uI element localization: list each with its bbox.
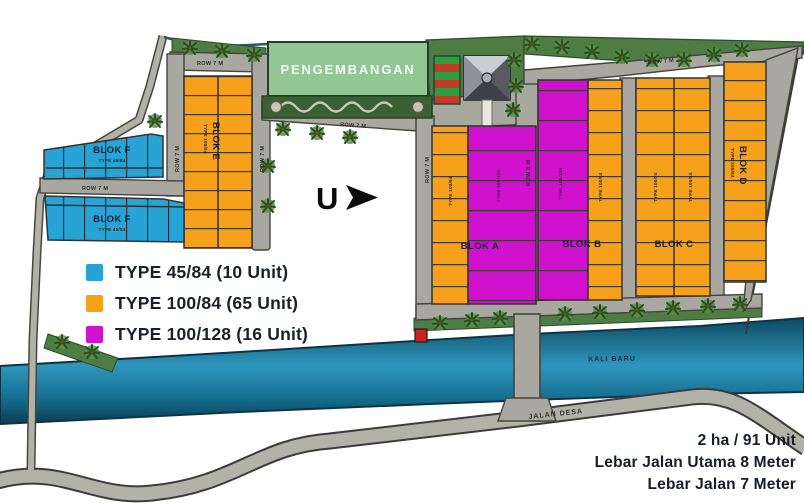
site-plan: PENGEMBANGAN <box>0 0 804 504</box>
development-label: PENGEMBANGAN <box>281 62 416 77</box>
summary-main-road: Lebar Jalan Utama 8 Meter <box>595 452 796 474</box>
legend: TYPE 45/84 (10 Unit) TYPE 100/84 (65 Uni… <box>86 262 308 355</box>
north-indicator: U <box>316 181 378 216</box>
development-area: PENGEMBANGAN <box>268 42 428 96</box>
svg-text:ROW 7 M: ROW 7 M <box>175 146 181 172</box>
legend-label: TYPE 100/84 (65 Unit) <box>115 293 298 314</box>
legend-label: TYPE 100/128 (16 Unit) <box>115 324 308 345</box>
legend-label: TYPE 45/84 (10 Unit) <box>115 262 288 283</box>
svg-text:TYPE 100/84: TYPE 100/84 <box>653 172 658 202</box>
svg-text:TYPE 100/84: TYPE 100/84 <box>730 148 735 178</box>
svg-text:BLOK B: BLOK B <box>563 239 602 250</box>
summary-area-units: 2 ha / 91 Unit <box>595 430 796 452</box>
blok-a-right <box>468 126 536 304</box>
blok-c <box>636 78 710 296</box>
svg-text:BLOK F: BLOK F <box>93 145 131 156</box>
legend-swatch-orange <box>86 295 103 312</box>
svg-text:ROW 7 M: ROW 7 M <box>197 61 223 67</box>
road-row7-west-of-blok-e <box>167 54 184 196</box>
court <box>434 56 460 104</box>
legend-item-type-100-84: TYPE 100/84 (65 Unit) <box>86 293 308 314</box>
svg-text:TYPE 45/84: TYPE 45/84 <box>99 227 126 232</box>
north-arrow-icon <box>346 185 378 210</box>
svg-text:TYPE 100/128: TYPE 100/128 <box>496 169 501 202</box>
blok-b-right <box>588 80 622 300</box>
gazebo-path <box>482 100 492 126</box>
summary-info: 2 ha / 91 Unit Lebar Jalan Utama 8 Meter… <box>595 430 796 496</box>
svg-text:TYPE 100/128: TYPE 100/128 <box>558 167 563 200</box>
svg-text:ROW 7 M: ROW 7 M <box>260 146 266 172</box>
blok-b-left <box>538 80 588 300</box>
gate-marker <box>415 329 427 342</box>
site-plan-drawing: PENGEMBANGAN <box>0 0 804 504</box>
svg-text:BLOK E: BLOK E <box>210 122 221 160</box>
svg-text:TYPE 100/84: TYPE 100/84 <box>598 172 603 202</box>
svg-text:TYPE 100/84: TYPE 100/84 <box>688 172 693 202</box>
svg-text:ROW 7 M: ROW 7 M <box>82 186 108 192</box>
river-label: KALI BARU <box>588 356 636 364</box>
summary-secondary-road: Lebar Jalan 7 Meter <box>595 474 796 496</box>
svg-text:ROW 7 M: ROW 7 M <box>425 157 431 183</box>
svg-text:TYPE 100/84: TYPE 100/84 <box>203 124 208 154</box>
legend-item-type-100-128: TYPE 100/128 (16 Unit) <box>86 324 308 345</box>
blok-f-north <box>44 134 163 179</box>
legend-swatch-magenta <box>86 326 103 343</box>
svg-text:BLOK A: BLOK A <box>461 241 499 252</box>
svg-text:BLOK F: BLOK F <box>93 214 131 225</box>
blok-a-left <box>432 126 468 304</box>
legend-swatch-blue <box>86 264 103 281</box>
svg-text:BLOK D: BLOK D <box>737 146 748 185</box>
garden-strip <box>262 96 432 118</box>
svg-text:TYPE 100/84: TYPE 100/84 <box>448 176 453 206</box>
north-label: U <box>316 181 338 216</box>
svg-text:BLOK C: BLOK C <box>655 239 694 250</box>
svg-text:TYPE 45/84: TYPE 45/84 <box>99 158 126 163</box>
legend-item-type-45-84: TYPE 45/84 (10 Unit) <box>86 262 308 283</box>
svg-text:ROW 8 M: ROW 8 M <box>526 160 532 186</box>
svg-text:ROW 7 M: ROW 7 M <box>340 122 367 130</box>
road-row7-between-f <box>40 178 184 196</box>
